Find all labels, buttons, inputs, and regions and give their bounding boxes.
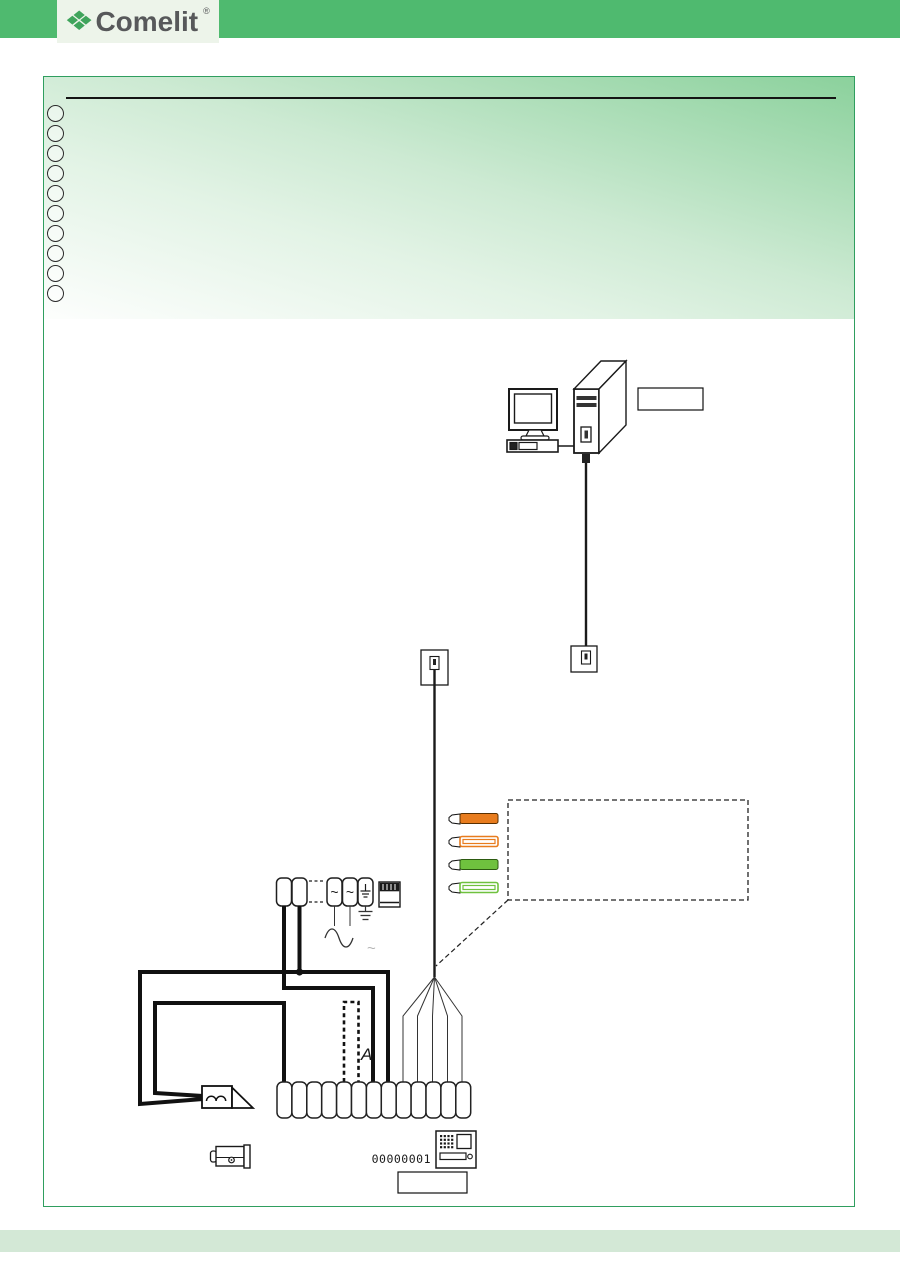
wire-orange-white-stripe: [449, 837, 498, 848]
terminal: [307, 1082, 322, 1118]
device-id: 00000001: [372, 1152, 431, 1166]
mains-symbols: [325, 906, 373, 947]
wire-green-solid: [449, 860, 498, 871]
power-terminal-group: [277, 878, 374, 906]
wire-green-white-stripe: [449, 883, 498, 894]
terminal: [292, 878, 307, 906]
ac-sine-icon: [325, 929, 353, 947]
cable-fanout-wires: [403, 977, 462, 1083]
tower-port-pin: [585, 431, 589, 439]
wire-orange-solid: [449, 814, 498, 825]
terminal: [352, 1082, 367, 1118]
terminal: [322, 1082, 337, 1118]
serial-socket-icon: [571, 646, 597, 672]
terminal: [277, 1082, 292, 1118]
terminal-earth: [358, 878, 373, 906]
terminal: [337, 1082, 352, 1118]
terminal: [396, 1082, 411, 1118]
ac-symbol-small: ~: [367, 940, 376, 957]
earth-ground-icon: [359, 912, 373, 920]
power-supply-icon: [379, 882, 400, 907]
terminal: [426, 1082, 441, 1118]
buzzer-icon: [202, 1086, 253, 1108]
keyboard-detail: [510, 443, 517, 450]
tower-slot-2: [577, 403, 597, 407]
monitor: [509, 389, 557, 430]
wire-junction-dot: [296, 968, 303, 975]
legend-pointer-line: [436, 900, 508, 966]
panel-call-button: [468, 1154, 473, 1159]
terminal: [441, 1082, 456, 1118]
terminal: [292, 1082, 307, 1118]
ac-terminal-symbol: ~: [330, 884, 338, 900]
computer-label-box: [638, 388, 703, 410]
footer-band: [0, 1230, 900, 1252]
entrance-panel-icon: [436, 1131, 476, 1168]
wire-run-1: [284, 906, 373, 1082]
jumper-switch-label: A: [360, 1045, 372, 1064]
computer-pc-icon: [507, 361, 626, 463]
tower-plug: [582, 454, 590, 463]
legend-note-box: [508, 800, 748, 900]
wire-run-4: [155, 1003, 284, 1096]
ac-terminal-symbol: ~: [346, 884, 354, 900]
tower-slot-1: [577, 396, 597, 400]
terminal: [411, 1082, 426, 1118]
terminal: [381, 1082, 396, 1118]
jumper-dashed: [344, 1002, 359, 1082]
panel-display-bar: [440, 1153, 466, 1160]
wiring-runs: [140, 906, 388, 1104]
door-lock-release-icon: [211, 1145, 251, 1168]
output-label-box: [398, 1172, 467, 1193]
terminal-strip-row: [277, 1082, 471, 1118]
monitor-stand: [526, 430, 544, 436]
panel-camera-window: [457, 1135, 471, 1149]
terminal: [277, 878, 292, 906]
wiring-diagram: ~ ~ ~ A: [0, 0, 900, 1274]
cable-wire-legend: [449, 814, 498, 894]
terminal: [366, 1082, 381, 1118]
terminal: [456, 1082, 471, 1118]
